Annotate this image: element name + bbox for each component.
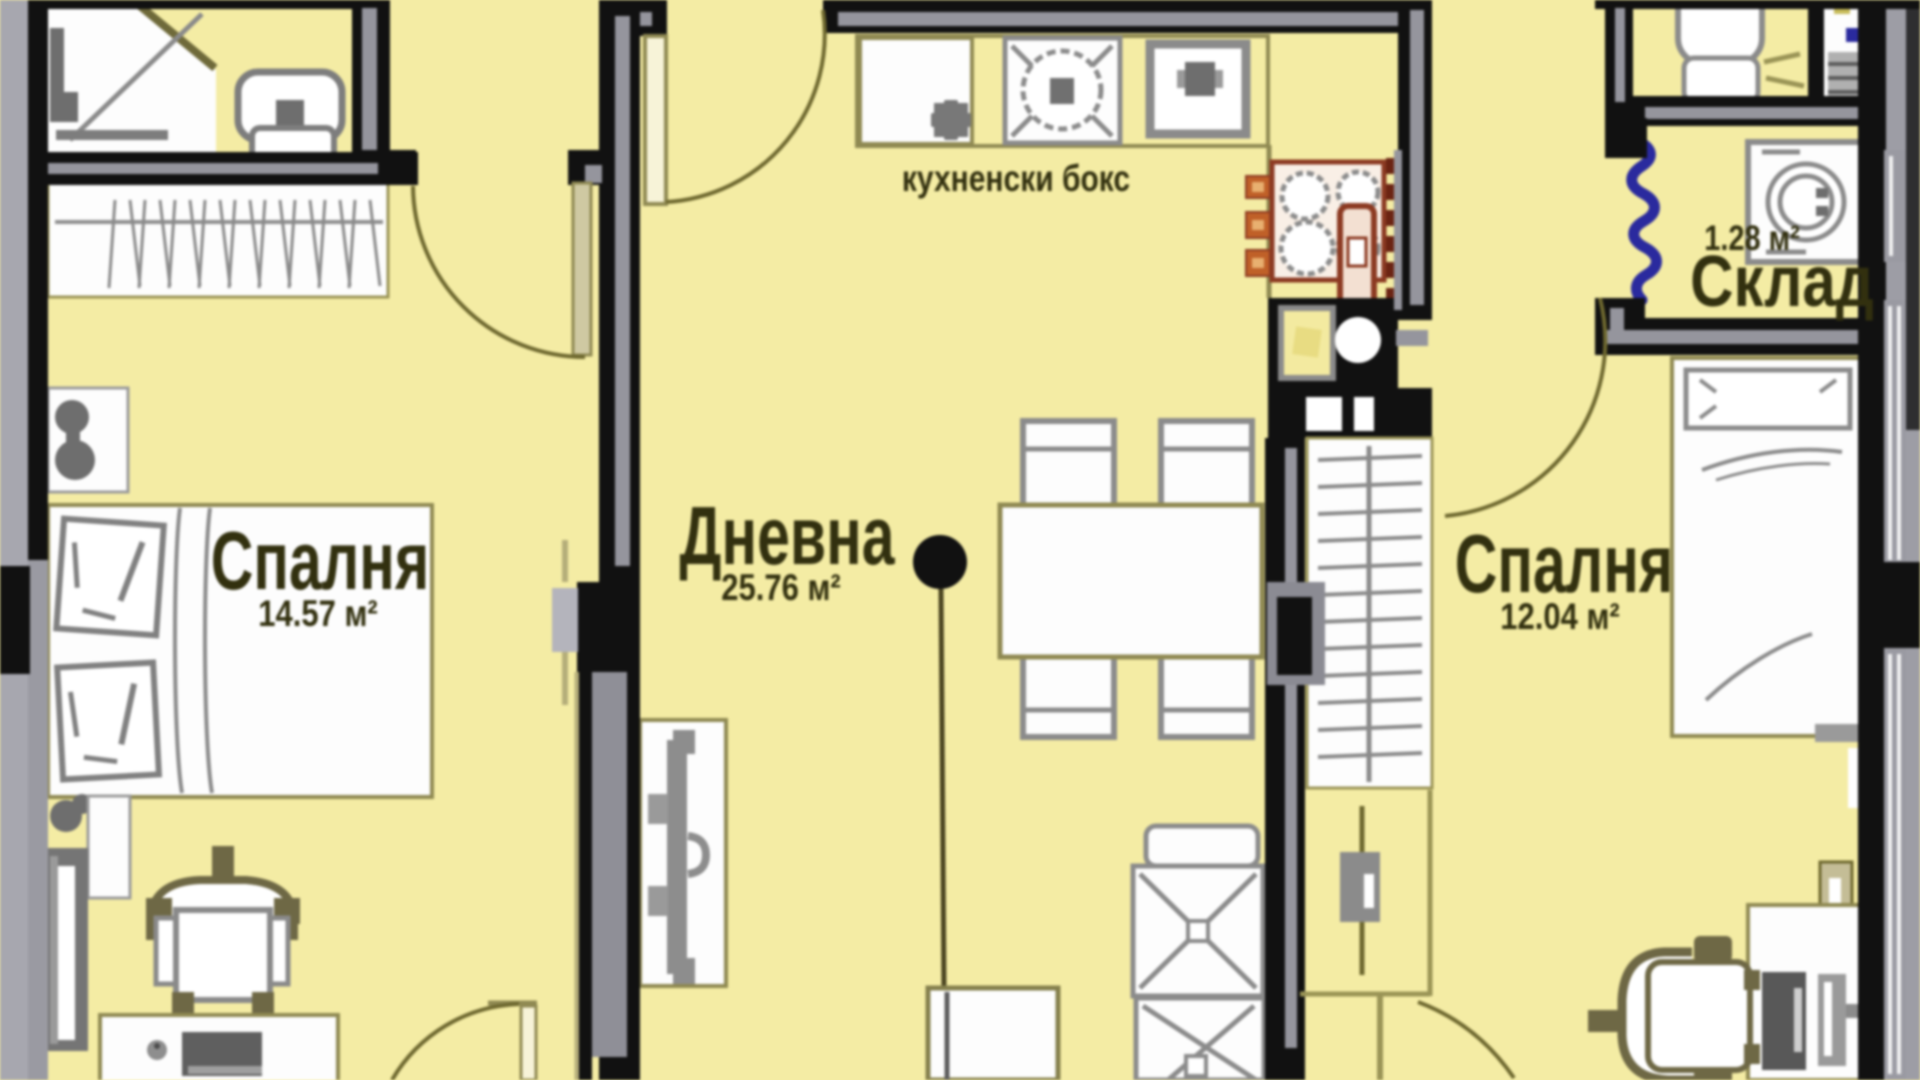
svg-text:25.76 м²: 25.76 м² bbox=[721, 567, 840, 608]
svg-text:14.57 м²: 14.57 м² bbox=[258, 593, 377, 634]
svg-text:1.28 м²: 1.28 м² bbox=[1704, 218, 1800, 257]
svg-text:кухненски бокс: кухненски бокс bbox=[902, 158, 1130, 200]
svg-text:12.04 м²: 12.04 м² bbox=[1500, 596, 1619, 637]
